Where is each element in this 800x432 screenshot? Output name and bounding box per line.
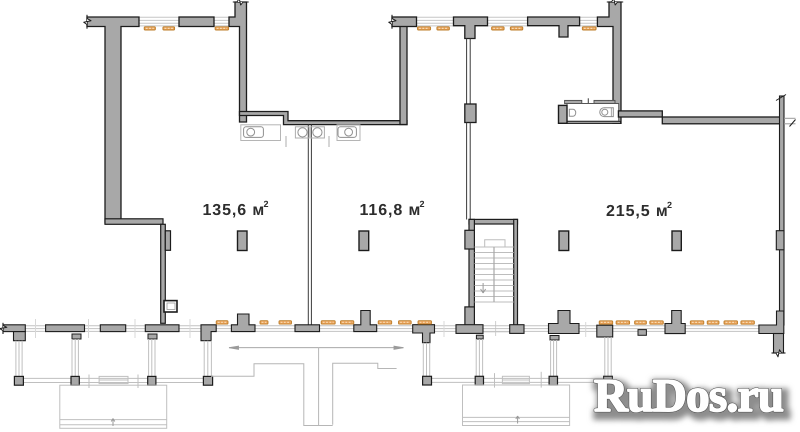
svg-text:RuDos.ru: RuDos.ru: [594, 370, 784, 422]
svg-text:2: 2: [420, 199, 425, 209]
svg-text:135,6 м: 135,6 м: [203, 202, 266, 219]
svg-text:2: 2: [264, 199, 269, 209]
svg-text:116,8 м: 116,8 м: [360, 202, 422, 219]
svg-text:215,5 м: 215,5 м: [606, 203, 669, 220]
svg-text:2: 2: [667, 200, 672, 210]
